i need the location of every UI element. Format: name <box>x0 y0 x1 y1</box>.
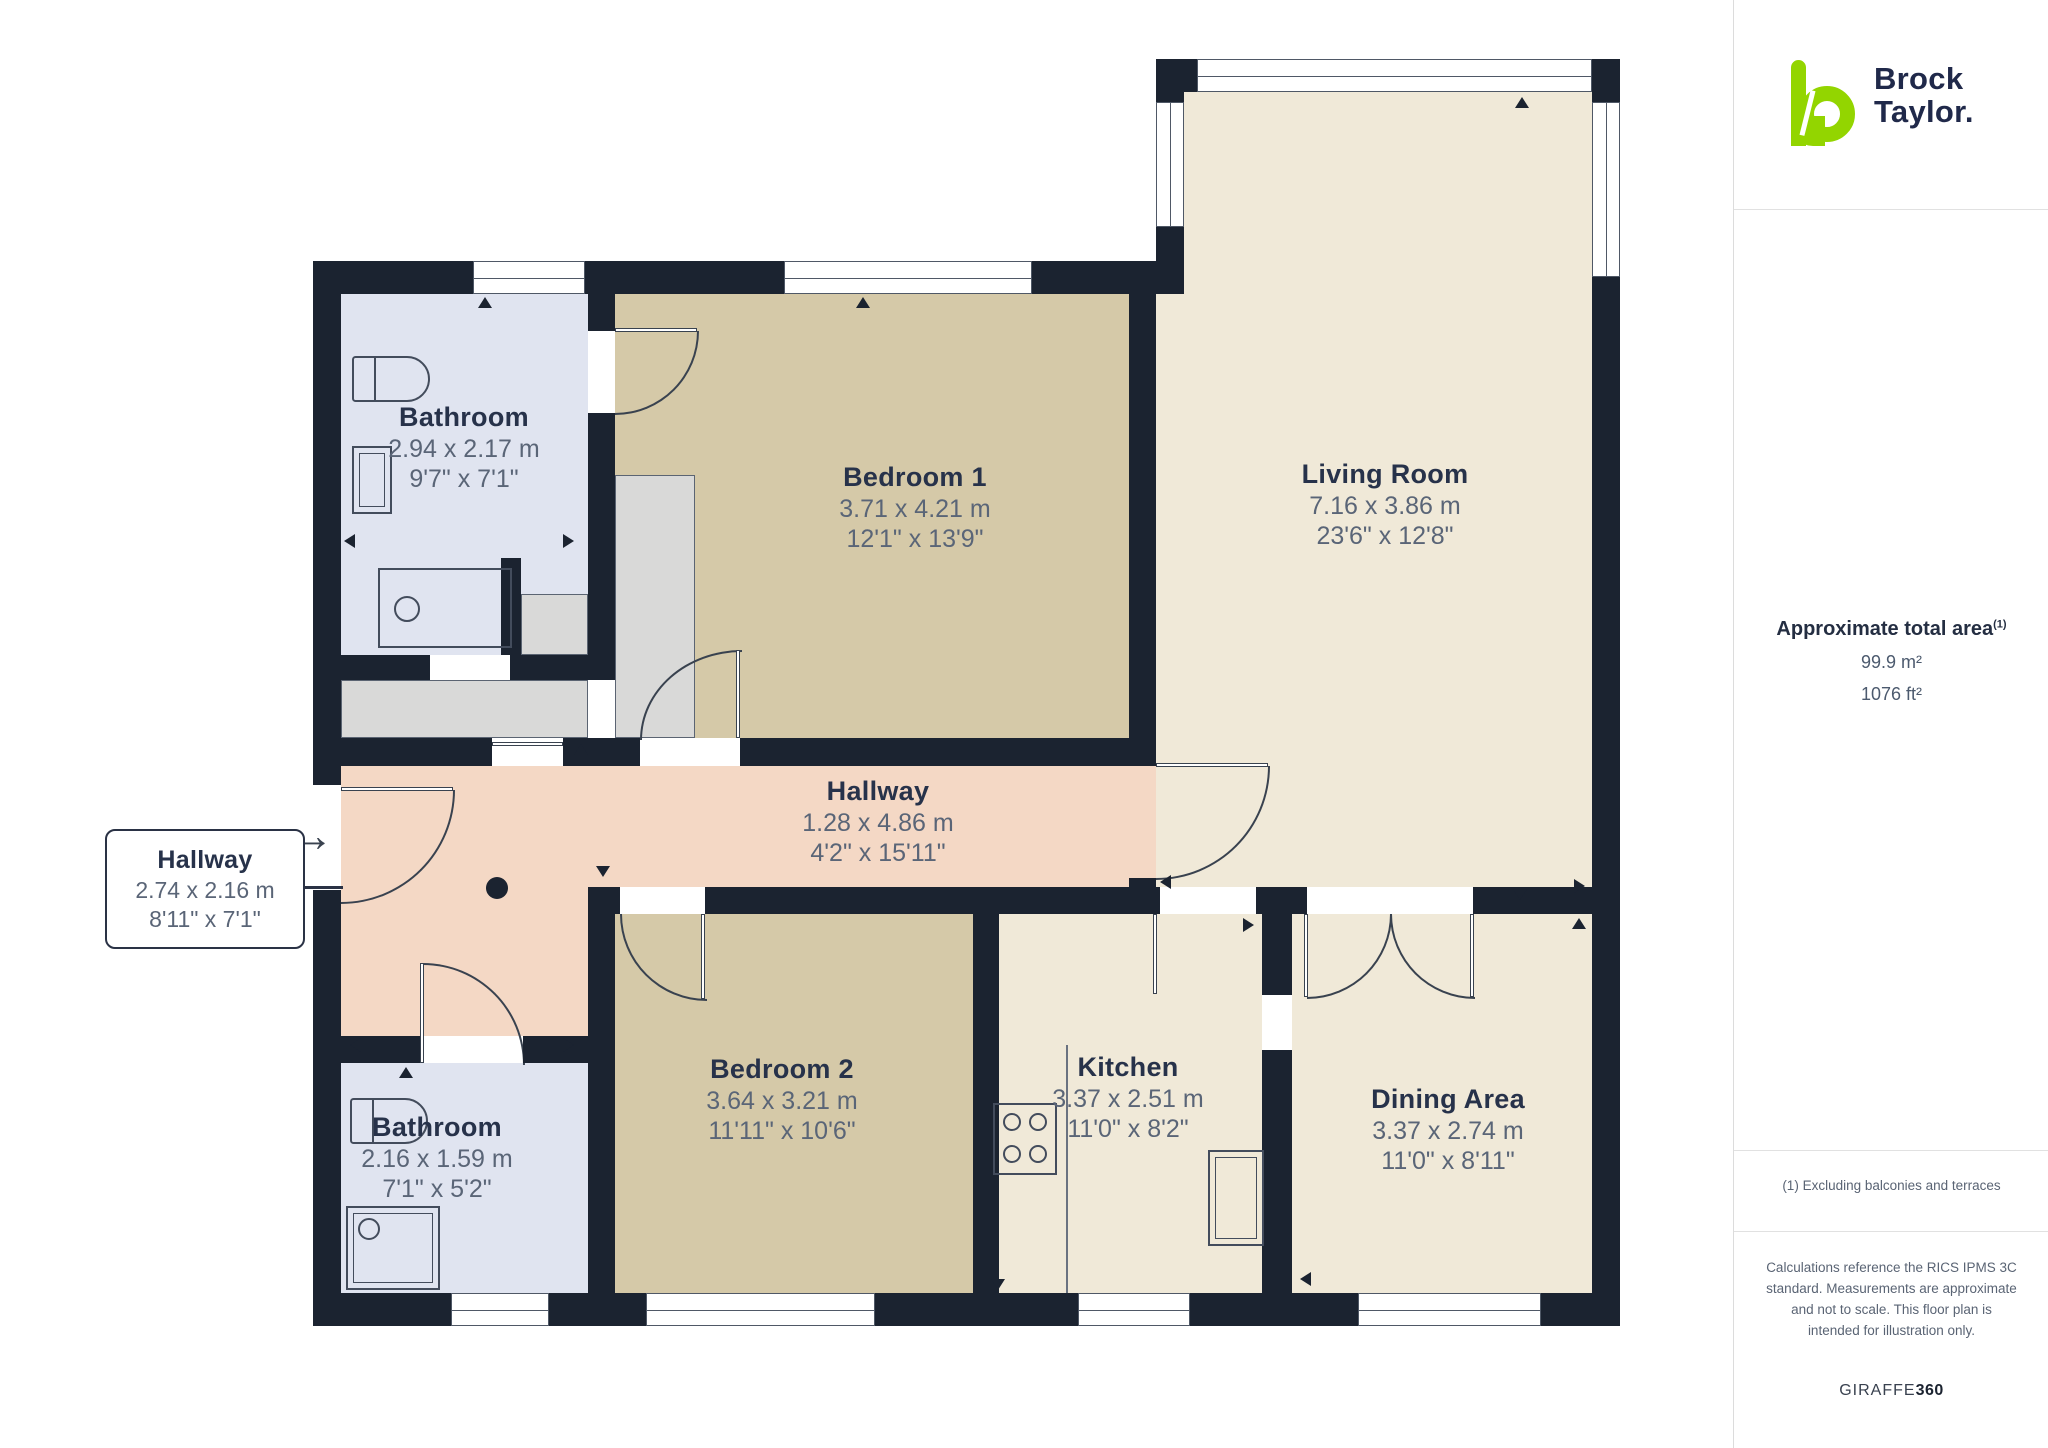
measure-arrow-icon <box>1160 875 1171 889</box>
info-sidebar: Brock Taylor. Approximate total area(1) … <box>1733 0 2048 1448</box>
bathroom-1-alcove <box>521 594 588 655</box>
room-name: Kitchen <box>1052 1051 1203 1084</box>
measure-arrow-icon <box>563 1038 574 1052</box>
credit-bold: 360 <box>1916 1382 1944 1399</box>
room-dim-metric: 3.71 x 4.21 m <box>839 494 990 525</box>
sidebar-divider <box>1734 1231 2048 1232</box>
camera-point-icon <box>486 877 508 899</box>
room-name: Bedroom 1 <box>839 461 990 494</box>
room-label-bedroom-2: Bedroom 2 3.64 x 3.21 m 11'11" x 10'6" <box>706 1053 857 1147</box>
room-dim-metric: 2.94 x 2.17 m <box>388 434 539 465</box>
brand-logo: Brock Taylor. <box>1734 55 2048 165</box>
room-name: Bathroom <box>361 1111 512 1144</box>
area-title-footnote-marker: (1) <box>1993 618 2006 630</box>
room-dim-imperial: 8'11" x 7'1" <box>107 905 303 934</box>
window-bathroom-2 <box>451 1293 549 1326</box>
room-dim-imperial: 4'2" x 15'11" <box>802 838 953 869</box>
room-label-living-room: Living Room 7.16 x 3.86 m 23'6" x 12'8" <box>1302 458 1469 552</box>
room-name: Bathroom <box>388 401 539 434</box>
area-value-metric: 99.9 m² <box>1734 652 2048 673</box>
window-living-left <box>1156 102 1184 227</box>
room-label-dining-area: Dining Area 3.37 x 2.74 m 11'0" x 8'11" <box>1371 1083 1525 1177</box>
room-name: Hallway <box>107 845 303 876</box>
sidebar-divider <box>1734 209 2048 210</box>
dining-door-left-leaf <box>1304 914 1308 997</box>
room-dim-metric: 7.16 x 3.86 m <box>1302 491 1469 522</box>
wall-bathroom1-bottom-b <box>510 655 615 680</box>
brand-name-line1: Brock <box>1874 63 1974 96</box>
room-label-bathroom-2: Bathroom 2.16 x 1.59 m 7'1" x 5'2" <box>361 1111 512 1205</box>
room-name: Hallway <box>802 775 953 808</box>
bathroom-1-door-leaf <box>615 328 697 332</box>
entry-door-leaf <box>341 787 453 791</box>
room-dim-imperial: 12'1" x 13'9" <box>839 524 990 555</box>
area-title: Approximate total area(1) <box>1734 618 2048 641</box>
giraffe360-credit: GIRAFFE360 <box>1734 1382 2048 1400</box>
window-dining <box>1358 1293 1541 1326</box>
wall-kitchen-dining-b <box>1262 1050 1292 1293</box>
kitchen-door-leaf <box>1153 914 1157 994</box>
measure-arrow-icon <box>1513 889 1527 900</box>
wall-kitchen-dining-a <box>1262 914 1292 995</box>
stove-icon <box>993 1103 1057 1175</box>
room-dim-metric: 1.28 x 4.86 m <box>802 808 953 839</box>
vestibule-closet <box>341 680 588 738</box>
room-name: Dining Area <box>1371 1083 1525 1116</box>
wall-hallway-top-a <box>341 738 492 766</box>
bedroom-1-door-leaf <box>736 650 740 738</box>
wall-living-left-stub <box>1156 59 1184 102</box>
wall-south-corridor-c <box>1256 887 1307 914</box>
brock-taylor-logo-icon <box>1791 60 1861 152</box>
wall-living-left-lower <box>1156 227 1184 294</box>
room-name: Living Room <box>1302 458 1469 491</box>
wall-right-main <box>1592 277 1620 1326</box>
brand-name-line2: Taylor. <box>1874 96 1974 129</box>
measure-arrow-icon <box>856 297 870 308</box>
room-dim-imperial: 11'0" x 8'2" <box>1052 1114 1203 1145</box>
basin-icon <box>394 596 420 622</box>
wall-bathroom1-right-a <box>588 294 615 331</box>
room-label-hallway: Hallway 1.28 x 4.86 m 4'2" x 15'11" <box>802 775 953 869</box>
sink-icon <box>352 446 392 514</box>
total-area-block: Approximate total area(1) 99.9 m² 1076 f… <box>1734 618 2048 705</box>
wall-left-lower <box>313 890 341 1326</box>
wall-hallway-top-c <box>740 738 1156 766</box>
toilet-icon <box>352 356 430 402</box>
measure-arrow-icon <box>344 534 355 548</box>
measure-arrow-icon <box>574 744 588 755</box>
room-name: Bedroom 2 <box>706 1053 857 1086</box>
measure-arrow-icon <box>596 866 610 877</box>
floor-plan: → Bathroom 2.94 x 2.17 m 9'7" x 7'1" Bed… <box>0 0 1733 1448</box>
measure-arrow-icon <box>350 1038 361 1052</box>
room-dim-imperial: 23'6" x 12'8" <box>1302 521 1469 552</box>
window-bathroom-1 <box>473 261 585 294</box>
callout-leader-line <box>301 886 343 889</box>
room-dim-metric: 3.37 x 2.74 m <box>1371 1116 1525 1147</box>
wall-top-left-block <box>313 261 1184 294</box>
room-dim-imperial: 7'1" x 5'2" <box>361 1174 512 1205</box>
bathroom-2-door-leaf <box>420 963 424 1063</box>
measure-arrow-icon <box>1300 1272 1311 1286</box>
wall-bathroom1-bottom-a <box>341 655 430 680</box>
room-dim-imperial: 11'0" x 8'11" <box>1371 1146 1525 1177</box>
measure-arrow-icon <box>1243 918 1254 932</box>
window-bedroom-1 <box>784 261 1032 294</box>
area-title-text: Approximate total area <box>1776 618 1993 640</box>
window-kitchen <box>1078 1293 1190 1326</box>
measure-arrow-icon <box>991 1279 1005 1290</box>
wall-left-upper <box>313 261 341 785</box>
room-label-bedroom-1: Bedroom 1 3.71 x 4.21 m 12'1" x 13'9" <box>839 461 990 555</box>
room-label-bathroom-1: Bathroom 2.94 x 2.17 m 9'7" x 7'1" <box>388 401 539 495</box>
room-dim-imperial: 11'11" x 10'6" <box>706 1116 857 1147</box>
measure-arrow-icon <box>563 534 574 548</box>
shower-icon <box>346 1206 440 1290</box>
shower-drain-icon <box>358 1218 380 1240</box>
wall-bathroom1-right-b <box>588 413 615 666</box>
sidebar-divider <box>1734 1150 2048 1151</box>
vestibule-door-leaf <box>492 742 563 746</box>
living-room-door-leaf <box>1156 763 1268 767</box>
window-bedroom-2 <box>646 1293 875 1326</box>
wall-right-stub <box>1592 59 1620 102</box>
area-footnote: (1) Excluding balconies and terraces <box>1754 1178 2029 1193</box>
hallway-area <box>341 766 1156 887</box>
room-dim-metric: 3.64 x 3.21 m <box>706 1086 857 1117</box>
kitchen-sink-icon <box>1208 1150 1264 1246</box>
hallway-callout: Hallway 2.74 x 2.16 m 8'11" x 7'1" <box>105 829 305 949</box>
area-value-imperial: 1076 ft² <box>1734 684 2048 705</box>
wall-living-hallway-a <box>1129 294 1156 766</box>
brand-name: Brock Taylor. <box>1874 63 1974 128</box>
measure-arrow-icon <box>1515 97 1529 108</box>
room-label-kitchen: Kitchen 3.37 x 2.51 m 11'0" x 8'2" <box>1052 1051 1203 1145</box>
room-dim-imperial: 9'7" x 7'1" <box>388 464 539 495</box>
bedroom-2-door-leaf <box>701 914 705 999</box>
room-dim-metric: 2.16 x 1.59 m <box>361 1144 512 1175</box>
measure-arrow-icon <box>1572 918 1586 929</box>
dining-door-right-leaf <box>1470 914 1474 997</box>
room-dim-metric: 2.74 x 2.16 m <box>107 876 303 905</box>
wall-bedroom2-left <box>588 914 615 1293</box>
wall-south-corridor-a <box>588 887 620 914</box>
disclaimer-text: Calculations reference the RICS IPMS 3C … <box>1766 1258 2017 1342</box>
measure-arrow-icon <box>399 1067 413 1078</box>
window-living-top <box>1197 59 1592 92</box>
measure-arrow-icon <box>478 297 492 308</box>
wall-south-corridor-b <box>705 887 1160 914</box>
credit-regular: GIRAFFE <box>1839 1382 1915 1399</box>
window-living-right <box>1592 102 1620 277</box>
measure-arrow-icon <box>1574 879 1585 893</box>
room-dim-metric: 3.37 x 2.51 m <box>1052 1084 1203 1115</box>
